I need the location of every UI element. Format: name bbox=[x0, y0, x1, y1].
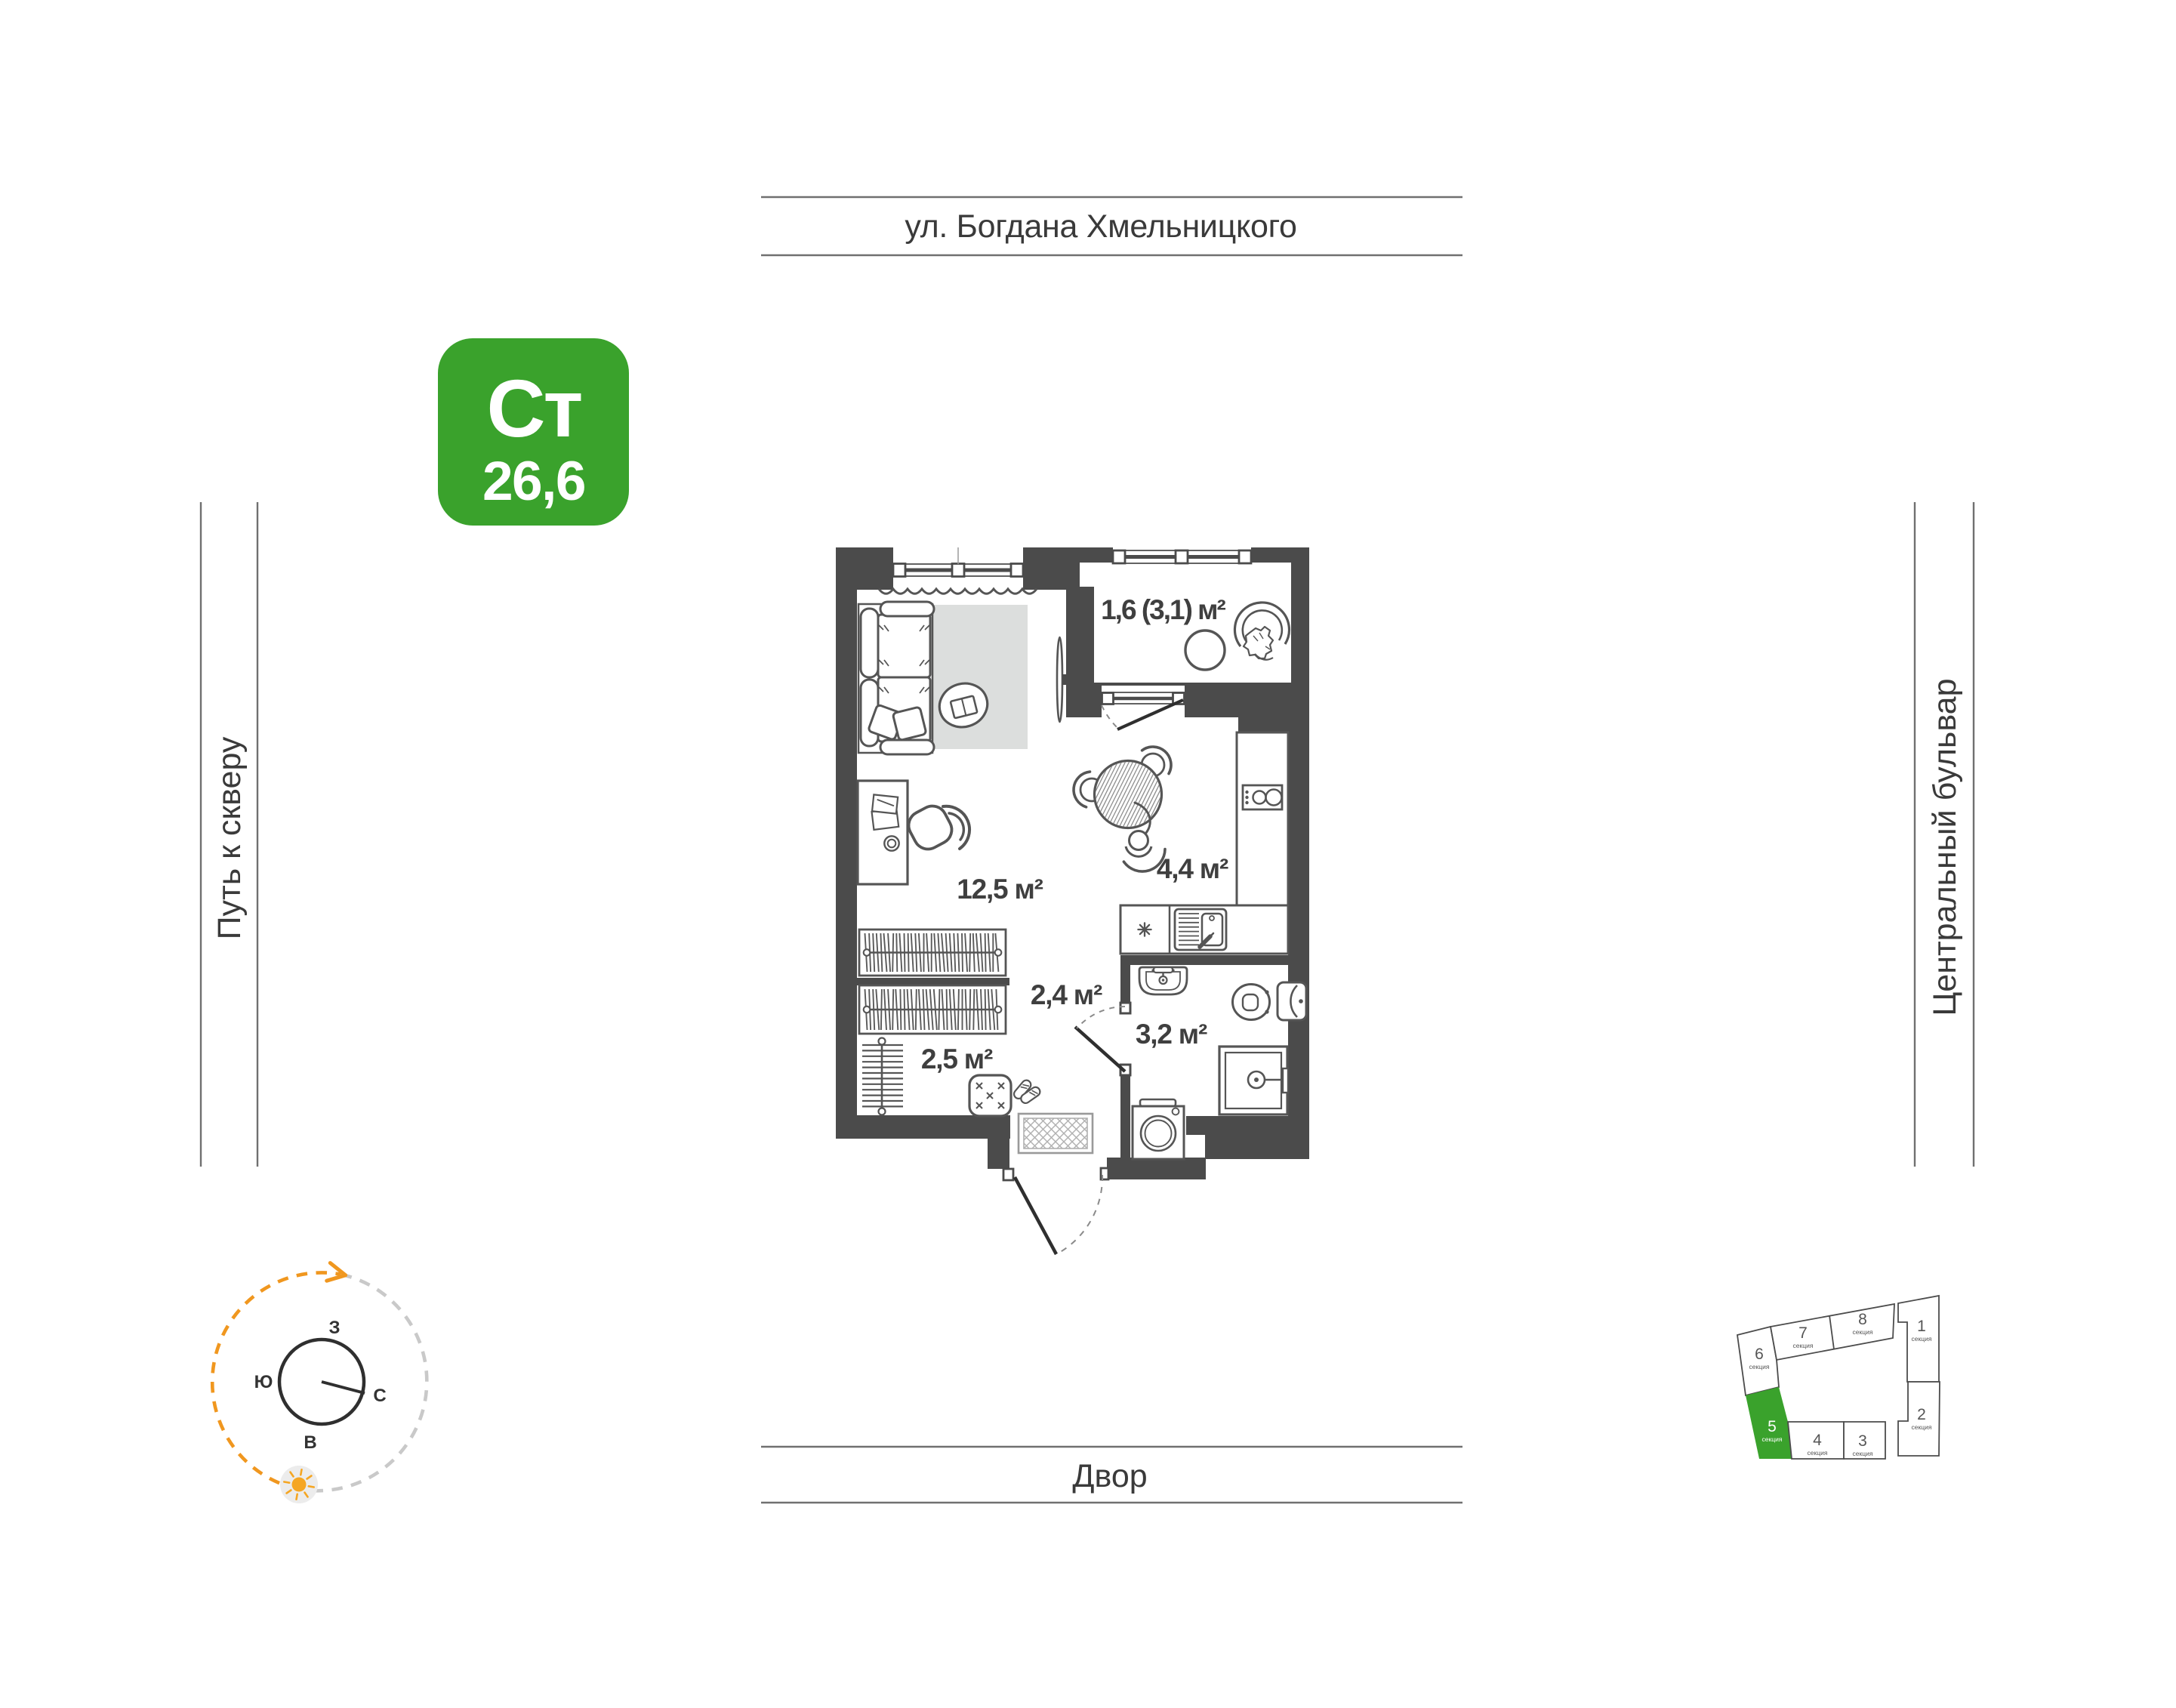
svg-text:7: 7 bbox=[1798, 1324, 1808, 1342]
svg-text:секция: секция bbox=[1912, 1423, 1932, 1431]
svg-text:З: З bbox=[328, 1318, 340, 1338]
svg-text:Ст: Ст bbox=[487, 362, 581, 454]
svg-text:2,4 м²: 2,4 м² bbox=[1031, 979, 1102, 1010]
svg-text:секция: секция bbox=[1749, 1363, 1770, 1370]
svg-text:5: 5 bbox=[1768, 1418, 1777, 1435]
svg-text:26,6: 26,6 bbox=[482, 451, 585, 512]
svg-text:Ю: Ю bbox=[254, 1372, 273, 1392]
svg-text:1: 1 bbox=[1917, 1318, 1926, 1335]
svg-text:Путь к скверу: Путь к скверу bbox=[211, 736, 248, 939]
svg-text:секция: секция bbox=[1853, 1450, 1873, 1457]
svg-text:12,5 м²: 12,5 м² bbox=[957, 874, 1043, 905]
svg-text:6: 6 bbox=[1755, 1346, 1764, 1363]
svg-text:секция: секция bbox=[1912, 1335, 1932, 1343]
svg-text:секция: секция bbox=[1762, 1435, 1783, 1443]
svg-text:С: С bbox=[373, 1386, 386, 1406]
svg-text:3: 3 bbox=[1858, 1432, 1867, 1450]
svg-text:Двор: Двор bbox=[1072, 1458, 1147, 1494]
svg-text:4,4 м²: 4,4 м² bbox=[1157, 853, 1228, 884]
svg-text:ул. Богдана Хмельницкого: ул. Богдана Хмельницкого bbox=[905, 208, 1296, 245]
svg-text:2: 2 bbox=[1917, 1406, 1926, 1423]
svg-text:1,6 (3,1) м²: 1,6 (3,1) м² bbox=[1101, 594, 1225, 625]
svg-text:В: В bbox=[304, 1432, 316, 1453]
svg-text:секция: секция bbox=[1808, 1449, 1828, 1457]
svg-text:секция: секция bbox=[1793, 1342, 1814, 1349]
svg-text:2,5 м²: 2,5 м² bbox=[921, 1044, 993, 1074]
svg-text:4: 4 bbox=[1813, 1432, 1822, 1449]
svg-text:Центральный бульвар: Центральный бульвар bbox=[1927, 678, 1963, 1016]
svg-text:8: 8 bbox=[1858, 1311, 1867, 1328]
svg-text:секция: секция bbox=[1853, 1328, 1873, 1336]
svg-text:3,2 м²: 3,2 м² bbox=[1136, 1019, 1207, 1050]
